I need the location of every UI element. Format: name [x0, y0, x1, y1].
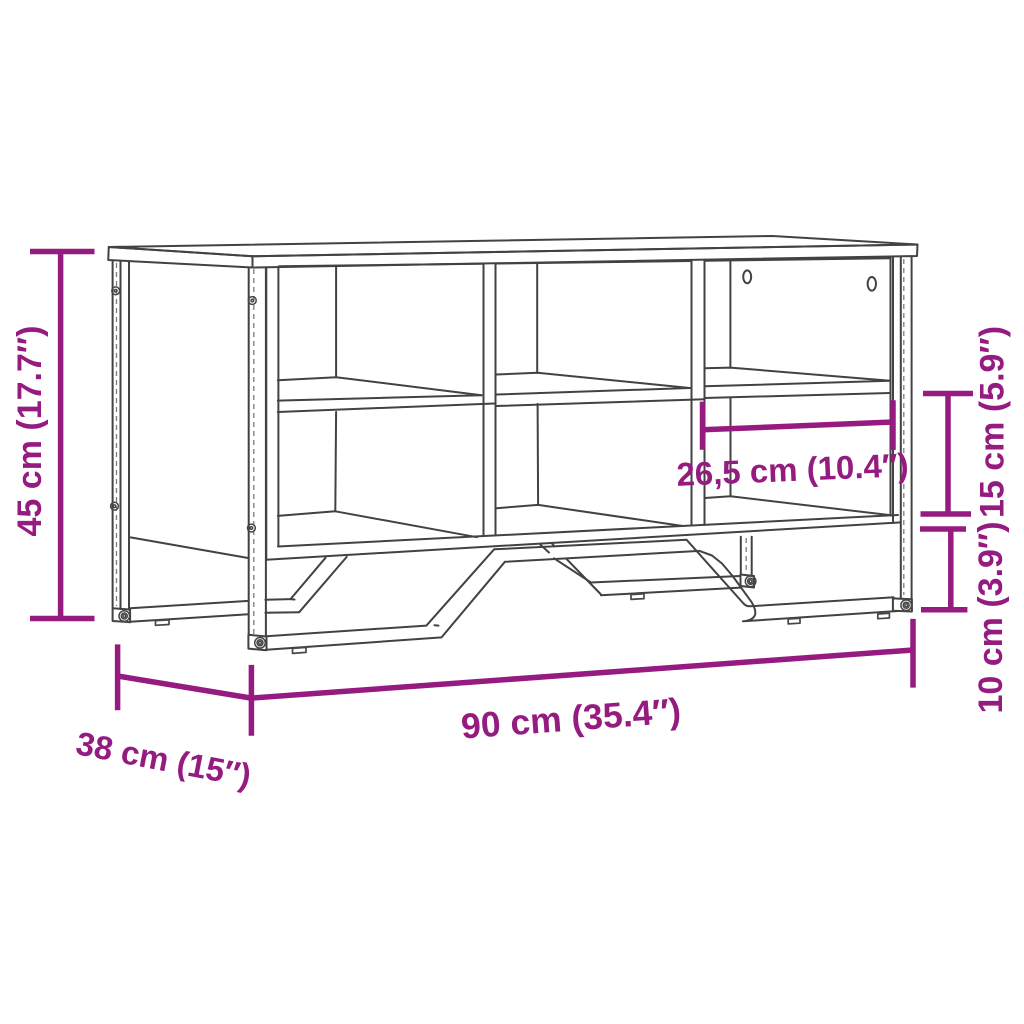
svg-text:15 cm (5.9″): 15 cm (5.9″) [973, 326, 1011, 518]
svg-text:45 cm (17.7″): 45 cm (17.7″) [11, 326, 49, 537]
svg-text:10 cm (3.9″): 10 cm (3.9″) [972, 521, 1010, 713]
